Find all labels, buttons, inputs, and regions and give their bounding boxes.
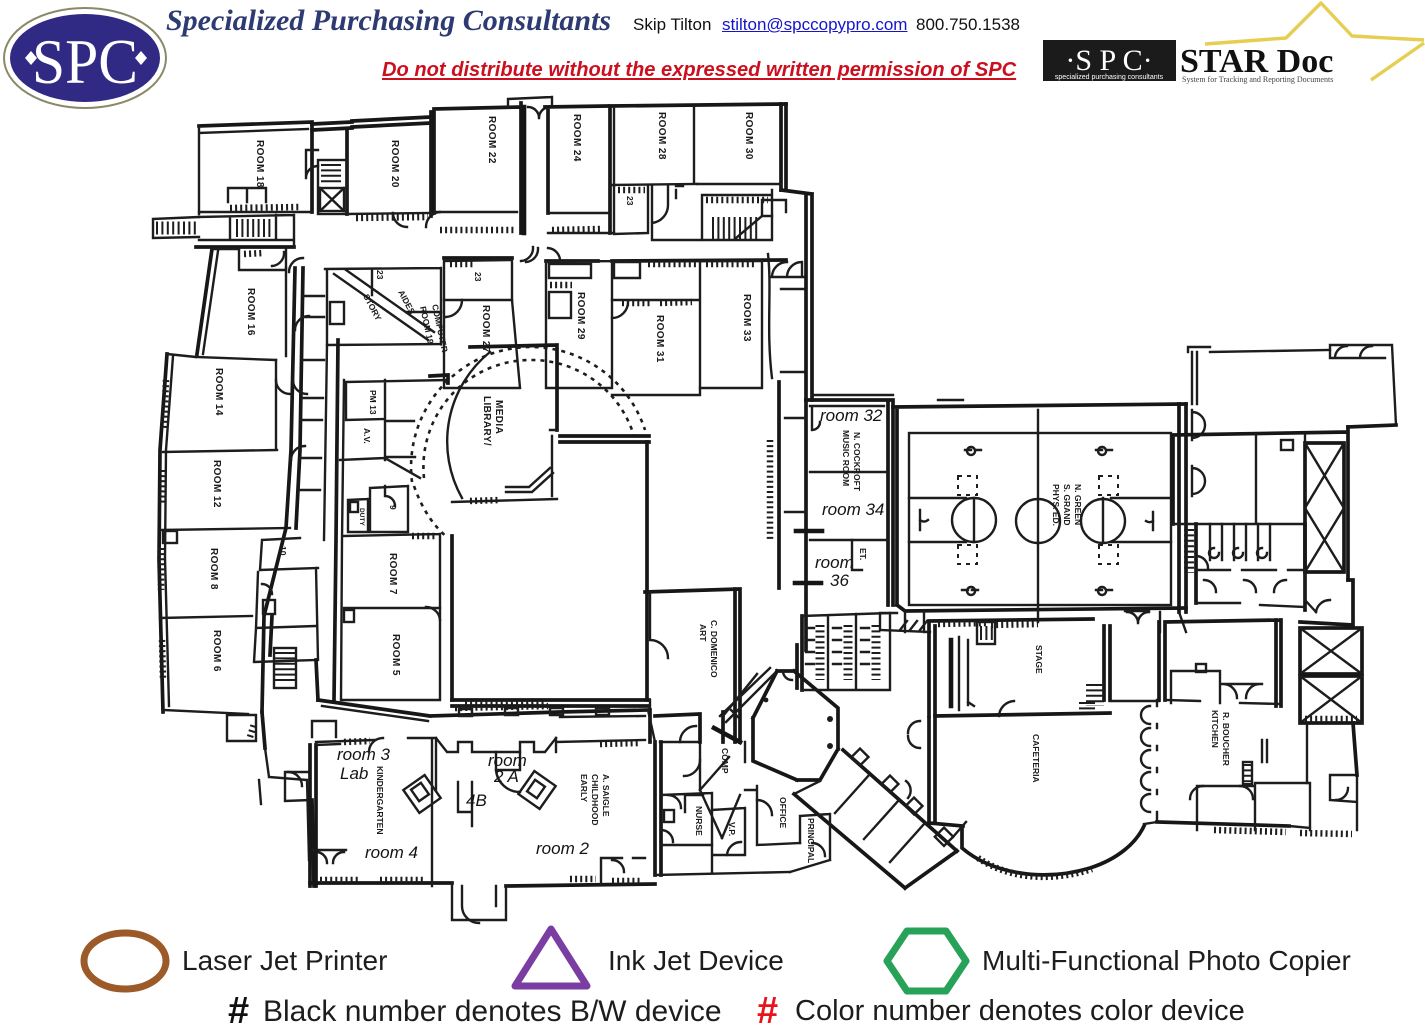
svg-text:A.V.: A.V. <box>362 428 372 444</box>
svg-text:MEDIA: MEDIA <box>493 400 504 434</box>
svg-text:KINDERGARTEN: KINDERGARTEN <box>375 766 385 834</box>
svg-text:room 32: room 32 <box>820 406 883 425</box>
svg-text:ROOM 12: ROOM 12 <box>211 460 222 508</box>
svg-text:A. SAIGLE: A. SAIGLE <box>601 774 611 817</box>
svg-text:23: 23 <box>625 196 635 206</box>
svg-text:ROOM 29: ROOM 29 <box>575 292 586 340</box>
svg-text:MUSIC ROOM: MUSIC ROOM <box>841 430 851 486</box>
svg-text:ROOM 20: ROOM 20 <box>389 140 400 188</box>
svg-text:COMP: COMP <box>720 748 730 774</box>
svg-text:CHILDHOOD: CHILDHOOD <box>590 774 600 825</box>
svg-text:ROOM 24: ROOM 24 <box>571 114 582 162</box>
svg-text:ROOM 22: ROOM 22 <box>486 116 497 164</box>
svg-text:ROOM 6: ROOM 6 <box>211 630 222 672</box>
svg-text:ROOM 30: ROOM 30 <box>743 112 754 160</box>
svg-text:V.P.: V.P. <box>727 822 737 836</box>
svg-text:2 A: 2 A <box>493 767 519 786</box>
svg-text:ROOM 8: ROOM 8 <box>208 548 219 590</box>
svg-text:STAGE: STAGE <box>1034 645 1044 674</box>
svg-text:room 2: room 2 <box>536 839 589 858</box>
svg-text:S. GRAND: S. GRAND <box>1062 484 1072 526</box>
svg-text:10: 10 <box>278 546 288 556</box>
svg-text:Lab: Lab <box>340 764 368 783</box>
svg-text:ROOM 7: ROOM 7 <box>387 553 398 595</box>
svg-text:LIBRARY/: LIBRARY/ <box>481 396 492 446</box>
svg-text:36: 36 <box>830 571 849 590</box>
svg-text:R. BOUCHER: R. BOUCHER <box>1221 712 1231 766</box>
svg-text:ROOM 14: ROOM 14 <box>213 368 224 416</box>
svg-text:room 34: room 34 <box>822 500 884 519</box>
svg-text:C. DOMENICO: C. DOMENICO <box>709 620 719 678</box>
svg-text:EARLY: EARLY <box>579 774 589 802</box>
svg-text:ROOM 28: ROOM 28 <box>656 112 667 160</box>
svg-text:PM 13: PM 13 <box>368 390 378 415</box>
svg-text:N. GREEN: N. GREEN <box>1073 484 1083 525</box>
svg-text:DUTY: DUTY <box>358 508 365 526</box>
svg-text:KITCHEN: KITCHEN <box>1210 710 1220 748</box>
svg-text:9: 9 <box>388 505 398 510</box>
svg-text:ET.: ET. <box>858 548 868 560</box>
svg-text:PRINCIPAL: PRINCIPAL <box>806 818 816 863</box>
svg-text:ART: ART <box>698 624 708 642</box>
svg-text:23: 23 <box>375 270 385 280</box>
svg-text:23: 23 <box>473 272 483 282</box>
svg-text:ROOM 31: ROOM 31 <box>654 315 665 363</box>
svg-text:ROOM 18: ROOM 18 <box>254 140 265 188</box>
svg-text:ROOM 33: ROOM 33 <box>741 294 752 342</box>
svg-text:NURSE: NURSE <box>694 806 704 836</box>
svg-text:room 4: room 4 <box>365 843 418 862</box>
svg-text:OFFICE: OFFICE <box>778 797 788 828</box>
svg-text:4B: 4B <box>466 791 487 810</box>
svg-text:ROOM 16: ROOM 16 <box>245 288 256 336</box>
svg-text:room 3: room 3 <box>337 745 390 764</box>
svg-text:AIDES: AIDES <box>396 288 417 316</box>
svg-text:CAFETERIA: CAFETERIA <box>1031 734 1041 783</box>
svg-text:N. COCKROFT: N. COCKROFT <box>852 432 862 492</box>
svg-text:ROOM 5: ROOM 5 <box>390 634 401 676</box>
svg-text:PHYS. ED.: PHYS. ED. <box>1051 484 1061 526</box>
svg-text:room: room <box>815 553 854 572</box>
